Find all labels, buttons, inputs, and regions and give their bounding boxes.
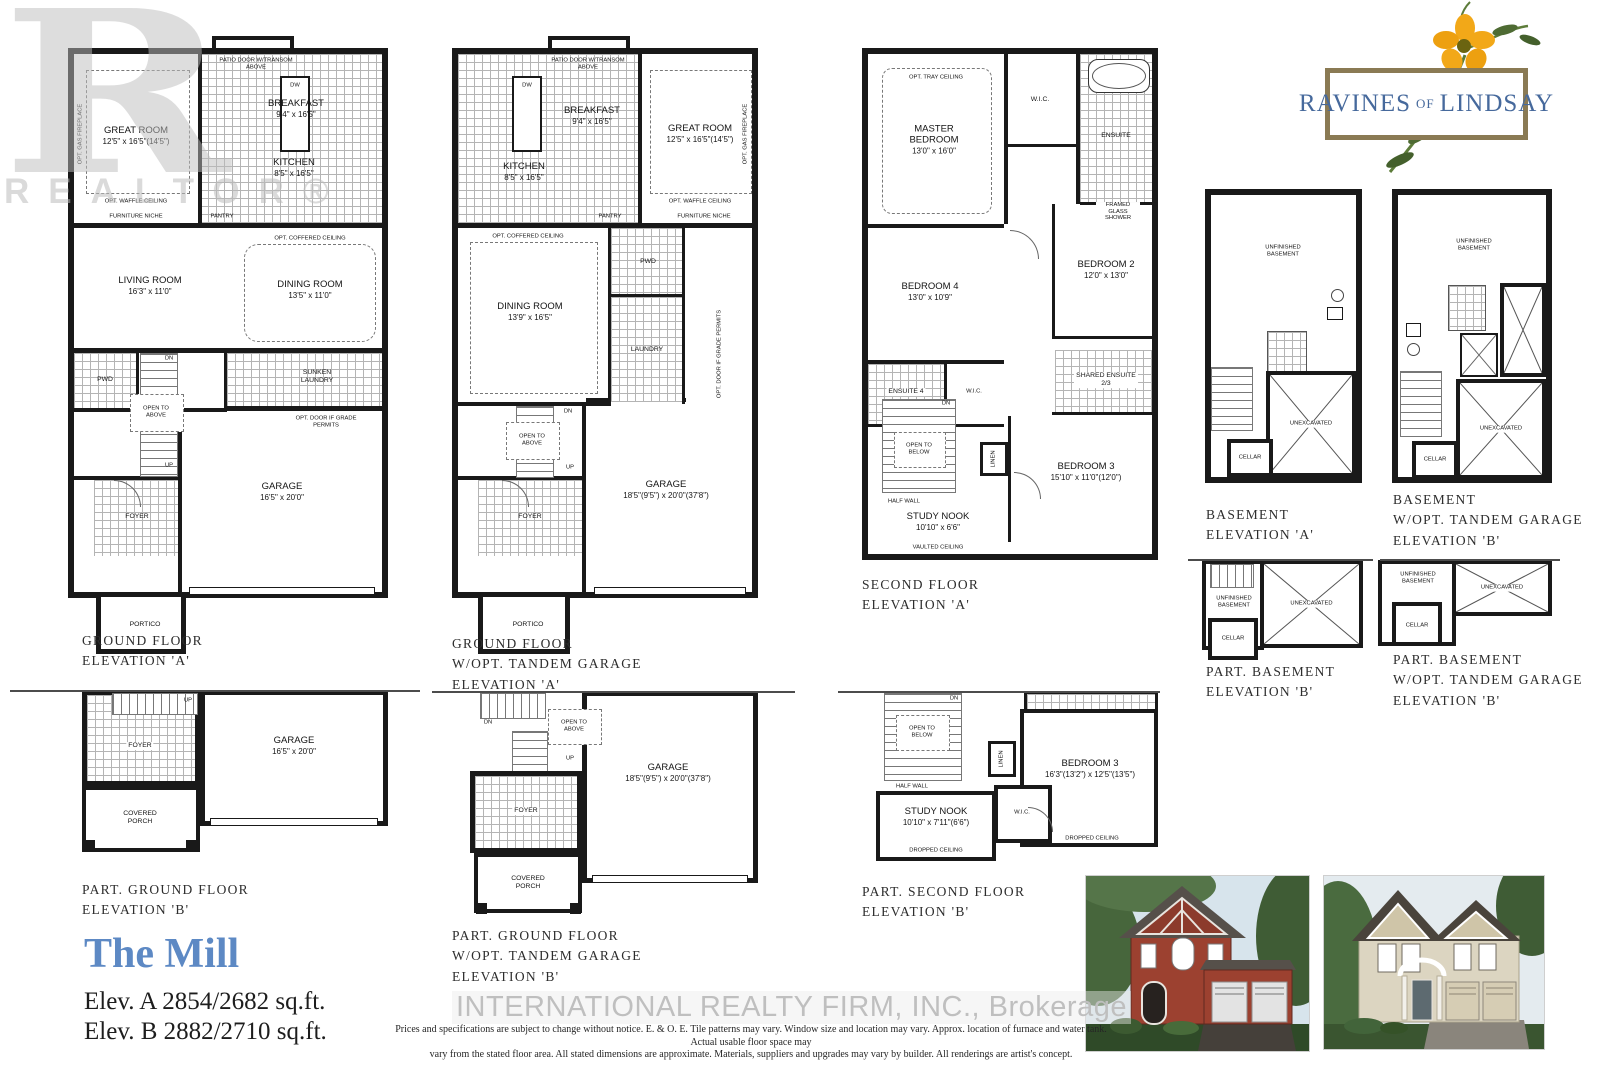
plan-part-basement-tandem-elevation-b: UNFINISHED BASEMENT UNEXCAVATED CELLAR: [1378, 560, 1552, 660]
wall: [582, 402, 586, 592]
stairs: [480, 693, 546, 719]
utility-box: [1406, 323, 1421, 337]
garage-label: GARAGE18'5"(9'5") x 20'0"(37'8"): [625, 763, 711, 783]
wall: [458, 223, 752, 228]
unexcavated-area: UNEXCAVATED: [1456, 379, 1546, 479]
kitchen-label: KITCHEN8'5" x 16'5": [503, 162, 545, 182]
model-elev-b-area: Elev. B 2882/2710 sq.ft.: [84, 1018, 327, 1046]
flyer-page: R REALTOR® DW PATIO DOOR W/TRANSOM ABOVE…: [0, 0, 1600, 1078]
stairs: [1210, 564, 1254, 588]
dining-room-label: DINING ROOM13'9" x 16'5": [497, 302, 562, 322]
half-wall-note: HALF WALL: [888, 499, 920, 506]
door-swing: [1010, 230, 1039, 259]
foyer-label: FOYER: [512, 807, 539, 815]
master-bedroom-label: MASTER BEDROOM13'0" x 16'0": [895, 124, 973, 155]
unfinished-basement-label: UNFINISHED BASEMENT: [1443, 238, 1505, 251]
wall: [1008, 416, 1011, 542]
unexcavated-area: UNEXCAVATED: [1260, 560, 1363, 648]
opt-waffle-ceiling-note: OPT. WAFFLE CEILING: [669, 199, 732, 206]
portico-label: PORTICO: [513, 621, 544, 629]
dn-note: DN: [564, 409, 572, 416]
furniture-niche-note: FURNITURE NICHE: [677, 214, 730, 221]
model-elev-a-area: Elev. A 2854/2682 sq.ft.: [84, 988, 325, 1016]
unexcavated-area: UNEXCAVATED: [1266, 371, 1356, 477]
unfinished-basement-label: UNFINISHED BASEMENT: [1392, 571, 1444, 584]
opt-tray-ceiling-note: OPT. TRAY CEILING: [909, 75, 963, 82]
cellar: CELLAR: [1392, 602, 1442, 646]
disclaimer-line-2: vary from the stated floor area. All sta…: [385, 1049, 1117, 1062]
coffered-ceiling-note: OPT. COFFERED CEILING: [492, 234, 563, 241]
dishwasher-label: DW: [522, 83, 532, 90]
garage-door: [189, 587, 375, 595]
wic-label: W.I.C.: [1014, 810, 1030, 817]
divider: [10, 690, 420, 692]
bedroom4-label: BEDROOM 413'0" x 10'9": [901, 282, 958, 302]
covered-porch-label: COVERED PORCH: [500, 875, 556, 891]
laundry-label: LAUNDRY: [631, 346, 663, 354]
dropped-ceiling-note: DROPPED CEILING: [909, 848, 962, 855]
coffered-ceiling-note: OPT. COFFERED CEILING: [274, 236, 345, 243]
caption-basement-b: BASEMENTW/OPT. TANDEM GARAGEELEVATION 'B…: [1393, 490, 1583, 551]
dn-note: DN: [484, 720, 492, 727]
wall: [638, 54, 642, 223]
dn-note: DN: [950, 696, 958, 703]
pwd-label: PWD: [640, 258, 656, 266]
dining-room-label: DINING ROOM13'5" x 11'0": [277, 280, 342, 300]
logo-word-ravines: RAVINES: [1299, 90, 1411, 118]
plan-second-floor-elevation-a: OPT. TRAY CEILING MASTER BEDROOM13'0" x …: [862, 48, 1158, 560]
up-note: UP: [165, 463, 173, 470]
bedroom2-label: BEDROOM 212'0" x 13'0": [1077, 260, 1134, 280]
breakfast-label: BREAKFAST9'4" x 16'5": [564, 106, 620, 126]
up-note: UP: [184, 698, 192, 705]
ensuite4-label: ENSUITE 4: [886, 388, 925, 396]
porch-pillar: [84, 840, 95, 851]
garage-label: GARAGE16'5" x 20'0": [260, 482, 304, 502]
divider: [1380, 559, 1560, 561]
plan-part-basement-elevation-b: UNFINISHED BASEMENT UNEXCAVATED CELLAR: [1202, 560, 1363, 664]
shared-ensuite-label: SHARED ENSUITE 2/3: [1074, 372, 1138, 388]
garage-block: [582, 691, 758, 883]
vaulted-ceiling-note: VAULTED CEILING: [913, 545, 964, 552]
dn-note: DN: [942, 401, 950, 408]
utility-nook: [1460, 333, 1498, 377]
open-to-below-note: OPEN TO BELOW: [899, 442, 939, 455]
cellar: CELLAR: [1227, 439, 1273, 477]
door-swing: [1014, 472, 1041, 499]
wall: [1004, 54, 1008, 224]
wic2-label: W.I.C.: [966, 389, 982, 396]
caption-part-second-b: PART. SECOND FLOORELEVATION 'B': [862, 882, 1025, 923]
caption-second-a: SECOND FLOORELEVATION 'A': [862, 575, 979, 616]
utility-box: [1327, 307, 1343, 320]
disclaimer-line-1: Prices and specifications are subject to…: [385, 1024, 1117, 1049]
bedroom3-label: BEDROOM 316'3"(13'2") x 12'5"(13'5"): [1045, 759, 1135, 779]
grade-door-note: OPT. DOOR IF GRADE PERMITS: [717, 310, 724, 398]
patio-door-bump: [548, 36, 630, 52]
divider: [838, 691, 1160, 693]
garage-label: GARAGE18'5"(9'5") x 20'0"(37'8"): [623, 480, 709, 500]
unfinished-basement-label: UNFINISHED BASEMENT: [1208, 595, 1260, 608]
cellar-label: CELLAR: [1406, 622, 1429, 629]
caption-part-ground-tandem-b: PART. GROUND FLOORW/OPT. TANDEM GARAGEEL…: [452, 926, 642, 987]
plan-part-ground-tandem-elevation-b: DN OPEN TO ABOVE UP FOYER COVERED PORCH …: [452, 691, 758, 919]
opt-gas-fireplace-note: OPT. GAS FIREPLACE: [743, 104, 750, 165]
stairs: [512, 731, 548, 773]
garage-label: GARAGE16'5" x 20'0": [272, 736, 316, 756]
caption-part-basement-tandem-b: PART. BASEMENTW/OPT. TANDEM GARAGEELEVAT…: [1393, 650, 1583, 711]
caption-part-ground-b: PART. GROUND FLOORELEVATION 'B': [82, 880, 249, 921]
unexcavated-area: UNEXCAVATED: [1452, 560, 1552, 616]
dropped-ceiling-note: DROPPED CEILING: [1065, 836, 1118, 843]
ensuite-label: ENSUITE: [1101, 132, 1130, 140]
wall: [1052, 412, 1152, 415]
plan-basement-elevation-a: UNFINISHED BASEMENT UNEXCAVATED CELLAR: [1205, 189, 1362, 483]
plan-ground-floor-tandem-elevation-a: DW PATIO DOOR W/TRANSOM ABOVE KITCHEN8'5…: [452, 48, 758, 598]
sunken-laundry-label: SUNKEN LAUNDRY: [288, 369, 346, 385]
garage-door: [594, 587, 746, 595]
bath-roughin: [1267, 331, 1307, 375]
caption-part-basement-b: PART. BASEMENTELEVATION 'B': [1206, 662, 1335, 703]
linen-label: LINEN: [999, 750, 1006, 767]
unexcavated-area-upper: [1500, 283, 1546, 377]
open-to-above-note: OPEN TO ABOVE: [512, 433, 552, 446]
breakfast-label: BREAKFAST9'4" x 16'5": [268, 99, 324, 119]
caption-ground-tandem-a: GROUND FLOORW/OPT. TANDEM GARAGEELEVATIO…: [452, 634, 642, 695]
flower-bloom: [1433, 14, 1495, 75]
garage-door: [592, 875, 748, 883]
foyer-label: FOYER: [126, 742, 153, 750]
divider: [432, 691, 795, 693]
dishwasher-label: DW: [290, 83, 300, 90]
caption-basement-a: BASEMENTELEVATION 'A': [1206, 505, 1314, 546]
caption-ground-a: GROUND FLOORELEVATION 'A': [82, 631, 203, 672]
plan-part-second-elevation-b: BEDROOM 316'3"(13'2") x 12'5"(13'5") DRO…: [862, 691, 1158, 873]
cellar-label: CELLAR: [1222, 636, 1245, 643]
realtor-watermark-text: REALTOR®: [4, 172, 348, 212]
wall: [682, 228, 685, 404]
wall: [1008, 144, 1078, 147]
unexcavated-label: UNEXCAVATED: [1478, 426, 1524, 433]
garage-block: [200, 690, 388, 826]
elevation-a-rendering: [1085, 875, 1310, 1052]
divider: [1188, 559, 1373, 561]
unexcavated-label: UNEXCAVATED: [1288, 421, 1334, 428]
model-name: The Mill: [84, 930, 239, 978]
cellar: CELLAR: [1208, 618, 1258, 660]
disclaimer: Prices and specifications are subject to…: [385, 1024, 1117, 1062]
wall: [868, 224, 1004, 228]
kitchen-breakfast-floor: [458, 54, 638, 223]
foyer-label: FOYER: [518, 513, 541, 521]
bathtub: [1088, 59, 1150, 93]
open-to-above-note: OPEN TO ABOVE: [136, 405, 176, 418]
wall: [1052, 204, 1055, 336]
plan-basement-tandem-elevation-b: UNFINISHED BASEMENT UNEXCAVATED CELLAR: [1392, 189, 1552, 483]
unexcavated-label: UNEXCAVATED: [1288, 601, 1334, 608]
wall: [1052, 336, 1152, 339]
utility-circle: [1407, 343, 1420, 356]
foyer-label: FOYER: [125, 513, 148, 521]
unexcavated-label: UNEXCAVATED: [1479, 585, 1525, 592]
pantry-note: PANTRY: [599, 214, 622, 221]
great-room-label: GREAT ROOM12'5" x 16'5"(14'5"): [667, 124, 734, 144]
unfinished-basement-label: UNFINISHED BASEMENT: [1252, 244, 1314, 257]
porch-pillar: [476, 903, 487, 914]
garage-door: [210, 818, 378, 826]
plan-part-ground-elevation-b: UP FOYER COVERED PORCH GARAGE16'5" x 20'…: [82, 690, 388, 860]
patio-door-note: PATIO DOOR W/TRANSOM ABOVE: [545, 57, 631, 70]
utility-circle: [1331, 289, 1344, 302]
living-room-label: LIVING ROOM16'3" x 11'0": [118, 276, 181, 296]
community-logo: RAVINES OF LINDSAY: [1325, 68, 1528, 140]
wic-label: W.I.C.: [1031, 96, 1050, 104]
cellar-label: CELLAR: [1424, 457, 1447, 464]
open-to-above-note: OPEN TO ABOVE: [554, 719, 594, 732]
covered-porch-label: COVERED PORCH: [112, 810, 168, 826]
framed-glass-shower-note: FRAMED GLASS SHOWER: [1096, 202, 1140, 222]
cellar: CELLAR: [1412, 441, 1458, 479]
cellar-label: CELLAR: [1239, 455, 1262, 462]
porch-pillar: [186, 840, 197, 851]
porch-pillar: [570, 903, 581, 914]
wall: [227, 406, 382, 411]
study-nook-label: STUDY NOOK10'10" x 6'6": [907, 512, 970, 532]
grade-door-note: OPT. DOOR IF GRADE PERMITS: [291, 415, 361, 428]
study-nook-label: STUDY NOOK10'10" x 7'11"(6'6"): [903, 807, 969, 827]
wall: [178, 411, 182, 592]
stairs: [1211, 367, 1253, 431]
portico-label: PORTICO: [130, 621, 161, 629]
brokerage-watermark: INTERNATIONAL REALTY FIRM, INC., Brokera…: [452, 991, 1131, 1024]
bedroom3-label: BEDROOM 315'10" x 11'0"(12'0"): [1051, 462, 1122, 482]
dn-note: DN: [165, 356, 173, 363]
logo-word-lindsay: LINDSAY: [1440, 90, 1554, 118]
bath-roughin: [1448, 285, 1486, 331]
linen-label: LINEN: [991, 450, 998, 467]
up-note: UP: [566, 465, 574, 472]
half-wall-note: HALF WALL: [896, 784, 928, 791]
stairs: [1400, 371, 1442, 437]
pwd-label: PWD: [97, 376, 113, 384]
up-note: UP: [566, 756, 574, 763]
logo-word-of: OF: [1416, 96, 1435, 112]
open-to-below-note: OPEN TO BELOW: [902, 725, 942, 738]
elevation-b-rendering: [1323, 875, 1545, 1050]
